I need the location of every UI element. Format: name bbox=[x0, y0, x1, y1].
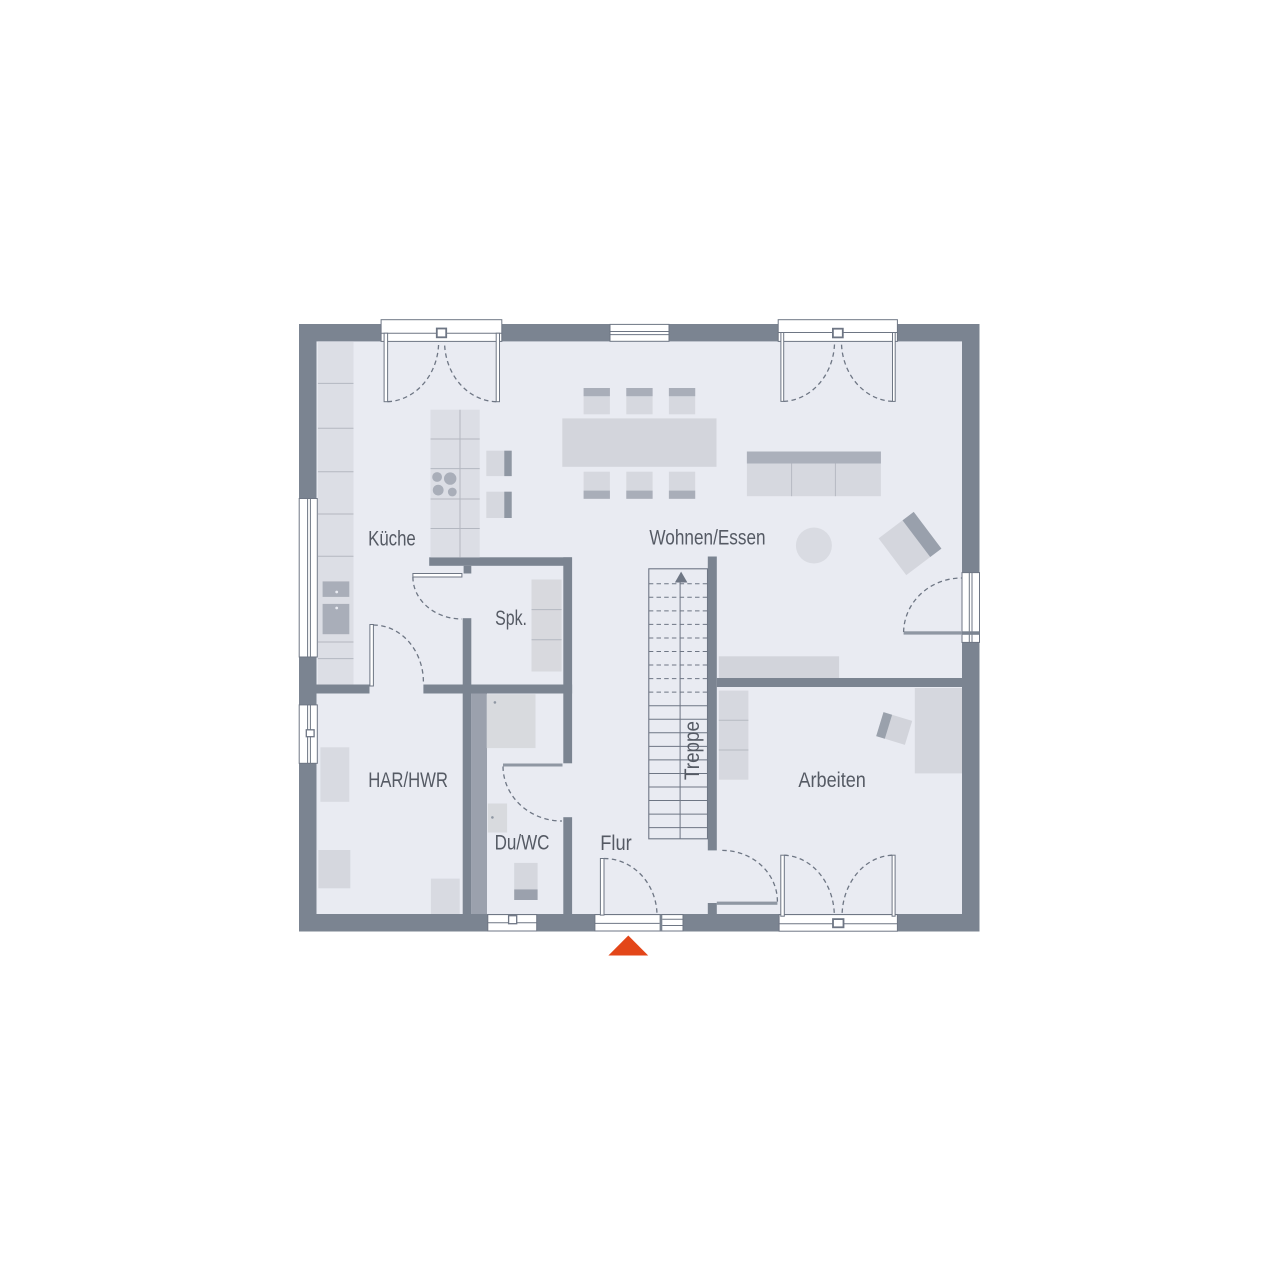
svg-text:Wohnen/Essen: Wohnen/Essen bbox=[649, 526, 765, 549]
svg-text:Flur: Flur bbox=[600, 832, 631, 855]
svg-text:Du/WC: Du/WC bbox=[495, 832, 550, 855]
svg-text:Treppe: Treppe bbox=[681, 721, 704, 780]
svg-text:Arbeiten: Arbeiten bbox=[798, 769, 866, 792]
svg-text:Spk.: Spk. bbox=[495, 607, 527, 630]
svg-text:HAR/HWR: HAR/HWR bbox=[368, 769, 448, 792]
svg-text:Küche: Küche bbox=[368, 527, 416, 550]
